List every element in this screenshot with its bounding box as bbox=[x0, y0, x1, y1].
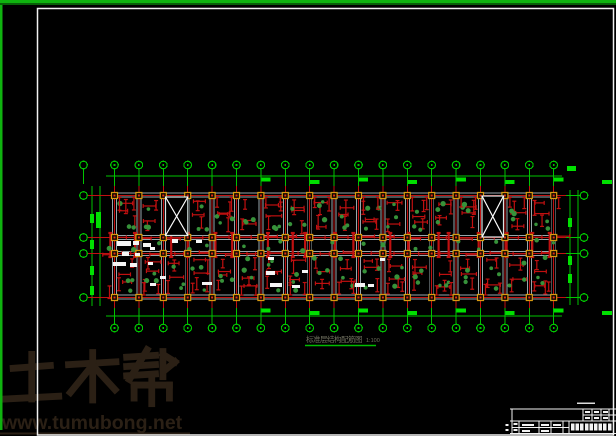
watermark-char-mu bbox=[69, 353, 116, 400]
drawing-title-scale: 1:100 bbox=[366, 338, 380, 344]
stairwell-1 bbox=[166, 197, 188, 236]
title-block-table bbox=[506, 403, 616, 434]
dimension-grid-green bbox=[80, 161, 616, 332]
cad-drawing-sheet: www.tumubong.net 标准层结构配筋图 1:100 bbox=[0, 0, 616, 436]
watermark-char-tu bbox=[5, 354, 59, 399]
watermark-url: www.tumubong.net bbox=[1, 412, 183, 434]
stairwell-2 bbox=[482, 196, 504, 237]
watermark-logo-glyphs bbox=[5, 350, 175, 404]
watermark: www.tumubong.net bbox=[0, 350, 190, 434]
drawing-title: 标准层结构配筋图 1:100 bbox=[305, 334, 380, 346]
drawing-title-text: 标准层结构配筋图 bbox=[306, 334, 362, 344]
cad-application-viewport: www.tumubong.net 标准层结构配筋图 1:100 bbox=[0, 0, 616, 436]
watermark-char-bang bbox=[127, 350, 175, 404]
